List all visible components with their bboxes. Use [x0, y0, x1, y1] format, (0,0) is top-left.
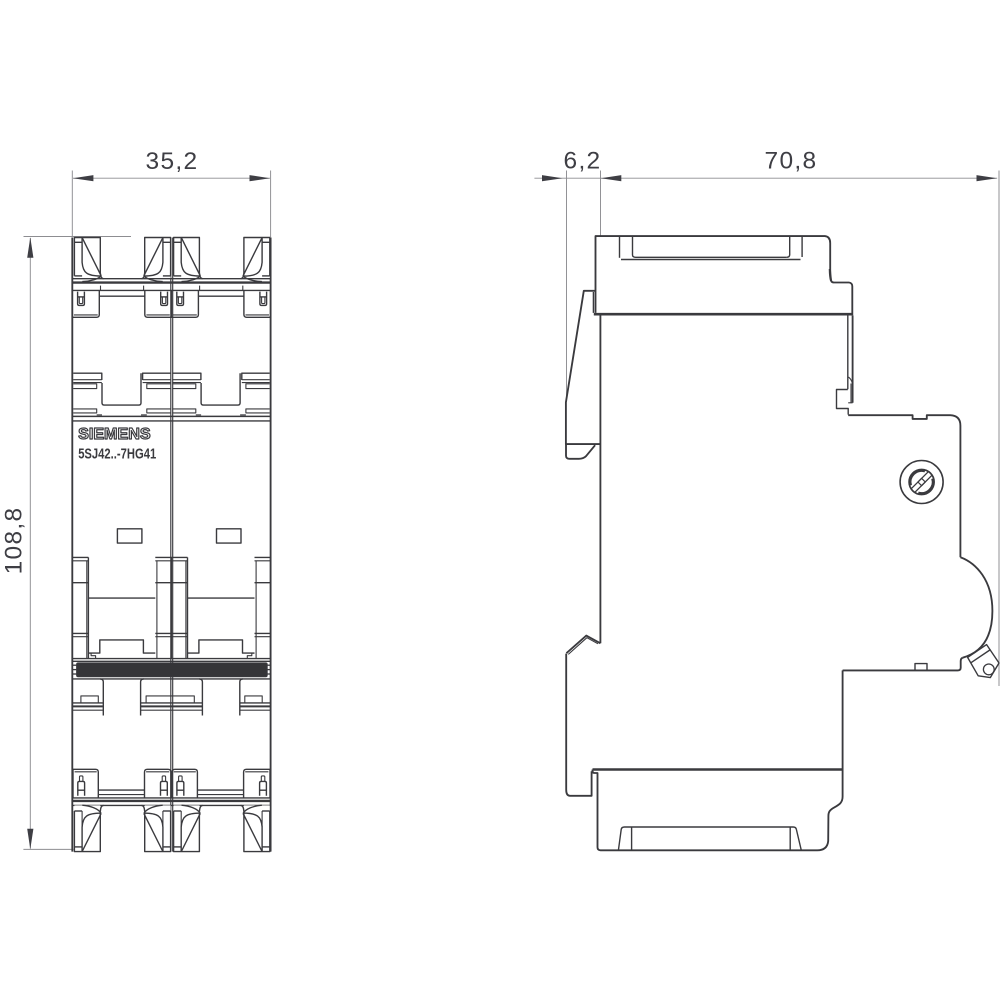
svg-text:35,2: 35,2 [146, 148, 199, 175]
svg-text:SIEMENS: SIEMENS [78, 426, 151, 443]
svg-text:6,2: 6,2 [564, 148, 602, 175]
svg-text:108,8: 108,8 [1, 507, 28, 575]
svg-text:5SJ42..-7HG41: 5SJ42..-7HG41 [78, 446, 156, 462]
svg-text:70,8: 70,8 [765, 148, 818, 175]
